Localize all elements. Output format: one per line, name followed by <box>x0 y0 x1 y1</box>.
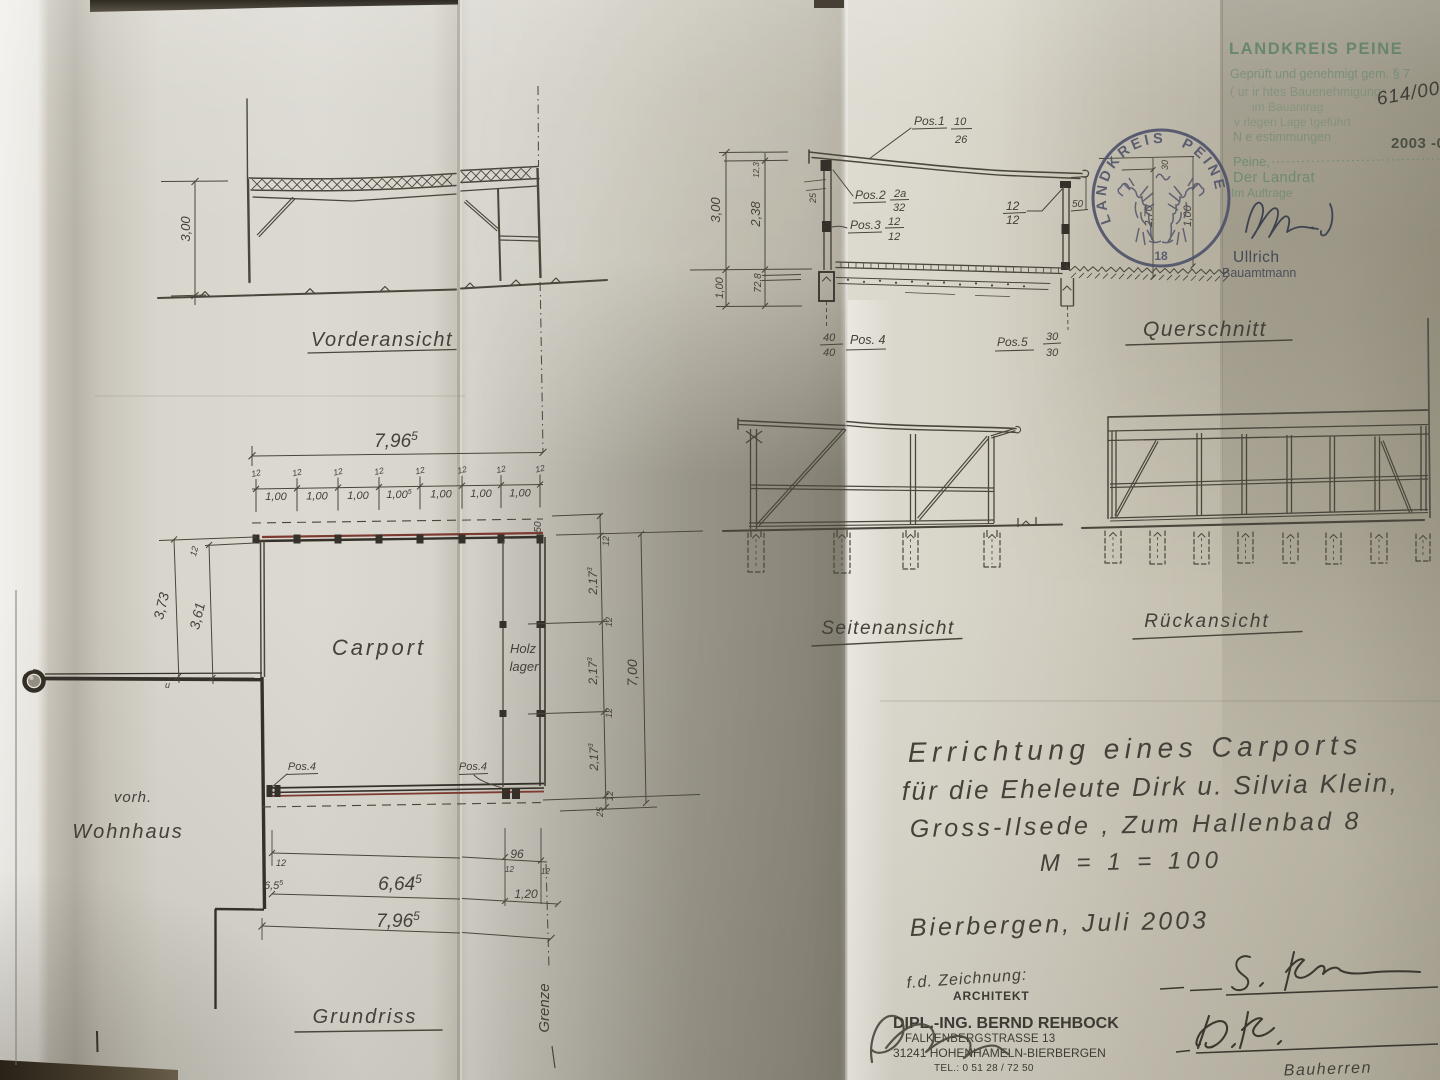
svg-text:3,73: 3,73 <box>150 591 172 621</box>
svg-text:1,00: 1,00 <box>1182 204 1194 226</box>
svg-text:Carport: Carport <box>332 635 426 660</box>
svg-text:40: 40 <box>823 347 836 359</box>
svg-text:v rlegen Lage tgeführt: v rlegen Lage tgeführt <box>1234 115 1351 129</box>
svg-text:Pos.4: Pos.4 <box>288 761 316 773</box>
svg-text:Peine,: Peine, <box>1233 154 1270 169</box>
svg-text:12: 12 <box>188 545 200 557</box>
svg-text:1,00: 1,00 <box>347 490 369 502</box>
svg-text:lager: lager <box>510 659 540 674</box>
svg-text:30: 30 <box>1046 347 1059 359</box>
svg-text:12: 12 <box>605 791 615 801</box>
svg-text:10: 10 <box>954 116 967 128</box>
svg-text:Pos.3: Pos.3 <box>850 218 881 232</box>
svg-text:6,55: 6,55 <box>264 880 283 892</box>
svg-text:3,61: 3,61 <box>186 601 208 631</box>
svg-text:Pos.1: Pos.1 <box>914 114 945 128</box>
svg-text:12: 12 <box>604 617 614 627</box>
svg-text:im Bauantrag: im Bauantrag <box>1252 100 1323 114</box>
svg-text:6,645: 6,645 <box>378 872 422 895</box>
svg-text:2,38: 2,38 <box>748 201 763 228</box>
svg-text:vorh.: vorh. <box>114 789 152 806</box>
svg-text:ARCHITEKT: ARCHITEKT <box>953 989 1030 1003</box>
svg-text:7,965: 7,965 <box>374 429 418 452</box>
svg-text:Holz: Holz <box>510 641 537 656</box>
svg-text:1,00: 1,00 <box>470 488 492 500</box>
svg-text:Pos. 4: Pos. 4 <box>850 333 885 347</box>
svg-text:12: 12 <box>276 858 286 868</box>
svg-text:12: 12 <box>414 465 426 477</box>
svg-text:Errichtung eines Carports: Errichtung eines Carports <box>908 729 1363 768</box>
svg-text:Bierbergen, Juli 2003: Bierbergen, Juli 2003 <box>909 906 1209 942</box>
svg-text:Bauherren: Bauherren <box>1283 1059 1372 1079</box>
svg-text:2,173: 2,173 <box>586 657 600 685</box>
svg-text:96: 96 <box>510 847 524 861</box>
svg-text:Bauamtmann: Bauamtmann <box>1222 266 1296 280</box>
svg-text:30: 30 <box>1046 331 1059 343</box>
svg-text:3,00: 3,00 <box>178 216 193 242</box>
svg-text:12: 12 <box>250 467 262 479</box>
svg-text:1,20: 1,20 <box>514 887 538 901</box>
svg-text:12: 12 <box>534 463 546 475</box>
svg-text:40: 40 <box>823 332 836 344</box>
svg-text:12: 12 <box>456 464 468 476</box>
svg-text:25: 25 <box>808 192 818 204</box>
svg-text:12: 12 <box>888 216 900 228</box>
svg-text:Vorderansicht: Vorderansicht <box>311 329 453 351</box>
svg-text:12: 12 <box>332 466 344 478</box>
svg-text:12: 12 <box>505 865 514 874</box>
svg-text:Wohnhaus: Wohnhaus <box>72 821 184 843</box>
svg-text:18: 18 <box>1154 249 1168 263</box>
svg-text:12: 12 <box>373 465 385 477</box>
svg-text:2,173: 2,173 <box>586 567 600 595</box>
svg-text:Pos.2: Pos.2 <box>855 188 886 202</box>
svg-text:Grundriss: Grundriss <box>313 1006 418 1028</box>
svg-text:50: 50 <box>533 521 544 533</box>
svg-text:12: 12 <box>604 708 614 718</box>
svg-text:2a: 2a <box>893 188 906 200</box>
svg-text:3,00: 3,00 <box>708 197 723 223</box>
svg-text:1,005: 1,005 <box>386 489 411 501</box>
svg-text:für die Eheleute Dirk u. Silvi: für die Eheleute Dirk u. Silvia Klein, <box>902 767 1400 806</box>
svg-text:1,00: 1,00 <box>509 487 531 499</box>
svg-text:26: 26 <box>954 134 968 146</box>
svg-text:50: 50 <box>1072 199 1084 210</box>
svg-text:1,00: 1,00 <box>430 489 452 501</box>
svg-text:12: 12 <box>888 231 900 243</box>
svg-text:Pos.5: Pos.5 <box>997 335 1028 349</box>
svg-text:LANDKREIS PEINE: LANDKREIS PEINE <box>1094 131 1228 226</box>
svg-text:u: u <box>165 680 170 690</box>
svg-text:12: 12 <box>1006 213 1020 227</box>
svg-text:Gross-Ilsede , Zum Hallenbad 8: Gross-Ilsede , Zum Hallenbad 8 <box>910 807 1362 843</box>
svg-text:Geprüft und genehmigt gem. § 7: Geprüft und genehmigt gem. § 7 <box>1230 67 1410 81</box>
svg-text:25: 25 <box>595 806 605 818</box>
svg-text:12: 12 <box>291 466 303 478</box>
svg-text:1,00: 1,00 <box>714 276 726 298</box>
svg-text:7,965: 7,965 <box>376 909 420 932</box>
svg-text:614/00: 614/00 <box>1375 78 1440 110</box>
svg-text:12: 12 <box>1006 199 1020 213</box>
svg-text:TEL.: 0 51 28 / 72 50: TEL.: 0 51 28 / 72 50 <box>934 1063 1034 1074</box>
svg-text:2,173: 2,173 <box>587 743 601 771</box>
svg-text:7,00: 7,00 <box>624 659 640 686</box>
svg-text:32: 32 <box>893 202 905 214</box>
svg-text:1,00: 1,00 <box>265 491 287 503</box>
svg-text:12,3: 12,3 <box>752 162 761 178</box>
svg-text:Rückansicht: Rückansicht <box>1144 611 1270 632</box>
svg-text:Seitenansicht: Seitenansicht <box>821 618 955 639</box>
svg-text:M = 1 = 100: M = 1 = 100 <box>1040 847 1224 877</box>
svg-text:Ullrich: Ullrich <box>1233 249 1280 266</box>
svg-text:FALKENBERGSTRASSE 13: FALKENBERGSTRASSE 13 <box>905 1033 1055 1045</box>
svg-text:Grenze: Grenze <box>536 983 553 1032</box>
svg-text:( ur ir htes Bauenehmigungs: ( ur ir htes Bauenehmigungs <box>1230 85 1387 99</box>
svg-text:Querschnitt: Querschnitt <box>1143 318 1267 341</box>
svg-text:Pos.4: Pos.4 <box>459 761 487 773</box>
svg-text:Der Landrat: Der Landrat <box>1233 170 1315 186</box>
svg-text:N e estimmungen: N e estimmungen <box>1233 130 1331 144</box>
svg-text:DIPL.-ING. BERND REHBOCK: DIPL.-ING. BERND REHBOCK <box>893 1015 1119 1032</box>
svg-text:2003 -0: 2003 -0 <box>1391 135 1440 152</box>
svg-text:1,00: 1,00 <box>306 490 328 502</box>
svg-text:30: 30 <box>1160 160 1170 170</box>
svg-text:Im Auftrage: Im Auftrage <box>1231 186 1293 200</box>
svg-text:LANDKREIS PEINE: LANDKREIS PEINE <box>1229 40 1403 58</box>
svg-text:12: 12 <box>601 536 611 546</box>
svg-text:12: 12 <box>495 463 507 475</box>
